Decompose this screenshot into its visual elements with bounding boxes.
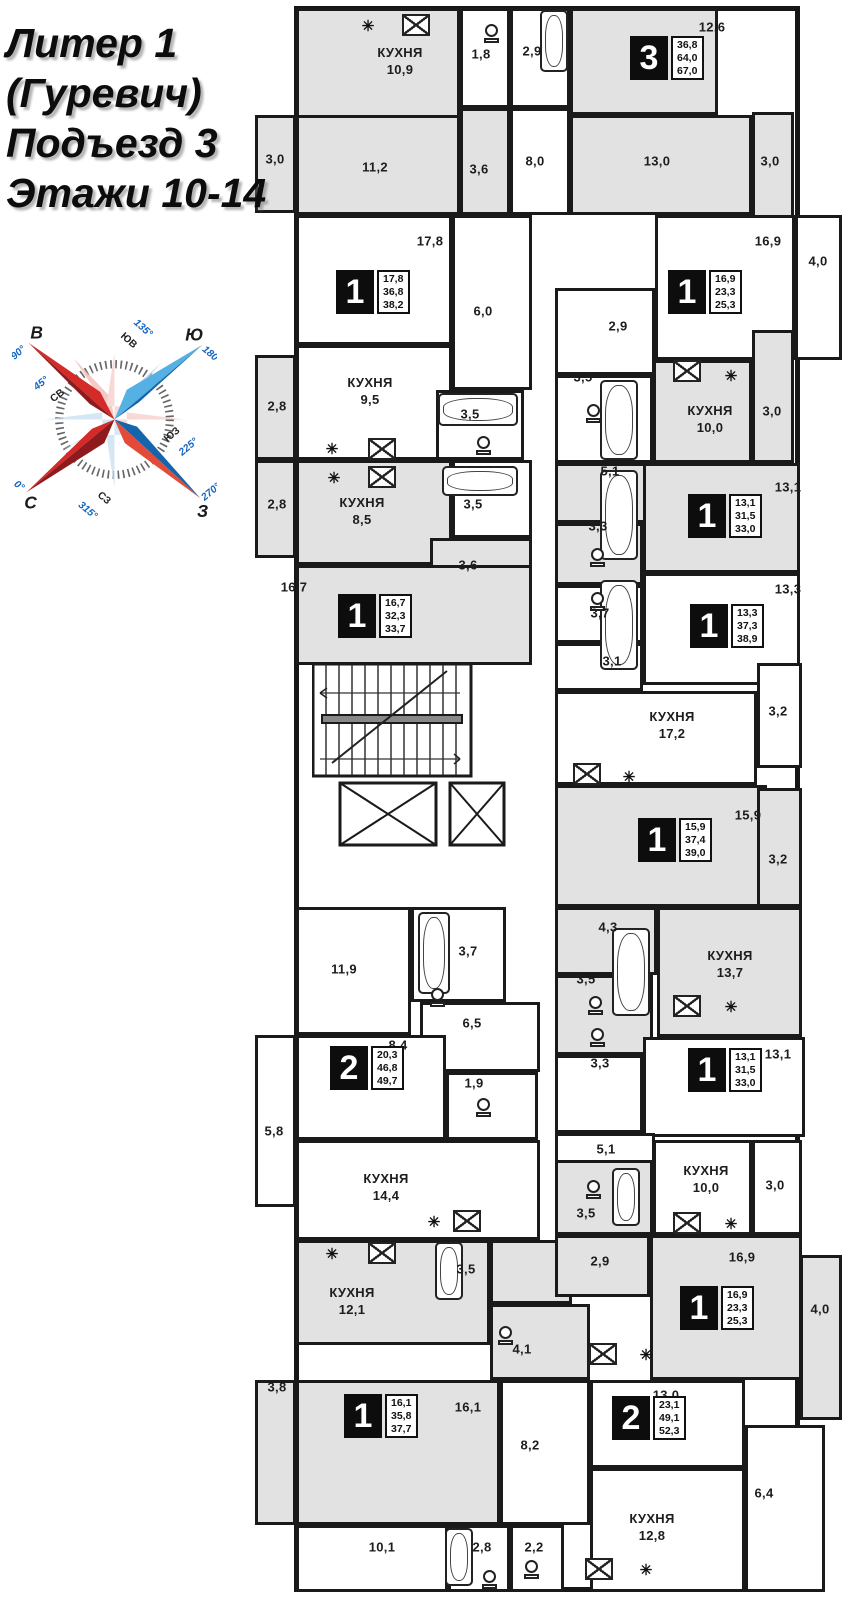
bathtub-icon: [612, 928, 650, 1016]
room-area-label: 3,8: [268, 1380, 287, 1397]
toilet-icon: [430, 988, 445, 1007]
room-area-label: 16,1: [455, 1400, 482, 1417]
apartment-room-count: 3: [630, 36, 668, 80]
room-area-label: 5,1: [601, 464, 620, 481]
floor-plan: КУХНЯ 10,91,82,912,613,03,03,011,23,68,0…: [0, 0, 842, 1600]
room-area-label: 5,8: [265, 1124, 284, 1141]
room-area-label: 3,5: [574, 370, 593, 387]
apartment-badge: 113,131,533,0: [688, 494, 762, 538]
room-area-label: 16,9: [729, 1250, 756, 1267]
stove-icon: [368, 466, 396, 488]
room: [296, 565, 532, 665]
room-area-label: 1,9: [465, 1076, 484, 1093]
room-area-label: 3,3: [591, 1056, 610, 1073]
compass-label-west: З: [197, 501, 208, 521]
room: [795, 215, 842, 360]
room-area-label: 6,0: [474, 304, 493, 321]
vent-icon: ✳: [640, 1561, 653, 1579]
room-area-label: 3,6: [459, 558, 478, 575]
title-architect: (Гуревич): [6, 68, 266, 118]
room: [500, 1380, 590, 1525]
room: [757, 788, 802, 907]
stairwell: [313, 664, 471, 776]
apartment-badge: 223,149,152,3: [612, 1396, 686, 1440]
stove-icon: [585, 1558, 613, 1580]
room-area-label: 11,9: [331, 962, 357, 979]
stove-icon: [673, 1212, 701, 1234]
vent-icon: ✳: [725, 998, 738, 1016]
room-area-label: КУХНЯ 10,0: [683, 1163, 728, 1197]
vent-icon: ✳: [326, 440, 339, 458]
bathtub-icon: [600, 470, 638, 560]
title-liter: Литер 1: [6, 18, 266, 68]
compass-label-se: ЮВ: [118, 331, 139, 351]
elevator-large: [340, 783, 436, 845]
room-area-label: КУХНЯ 13,7: [707, 948, 752, 982]
room: [296, 1525, 448, 1592]
room-area-label: 2,8: [473, 1540, 492, 1557]
stair-elevator-core: [312, 663, 512, 853]
room-area-label: 3,0: [761, 154, 780, 171]
compass-deg-sw: 225°: [176, 436, 201, 459]
room-area-label: 8,0: [526, 154, 545, 171]
apartment-areas: 13,131,533,0: [729, 1048, 762, 1092]
room-area-label: 3,3: [589, 519, 608, 536]
title-floors: Этажи 10-14: [6, 168, 266, 218]
compass-label-south: Ю: [185, 325, 203, 345]
bathtub-icon: [418, 912, 450, 994]
room-area-label: 3,7: [591, 606, 610, 623]
toilet-icon: [482, 1570, 497, 1589]
room: [452, 215, 532, 390]
room-area-label: 3,0: [763, 404, 782, 421]
vent-icon: ✳: [725, 1215, 738, 1233]
apartment-badge: 117,836,838,2: [336, 270, 410, 314]
stove-icon: [573, 763, 601, 785]
room-area-label: 3,0: [766, 1178, 785, 1195]
toilet-icon: [484, 24, 499, 43]
room-area-label: 2,9: [609, 319, 628, 336]
bathtub-icon: [600, 380, 638, 460]
room-area-label: 2,8: [268, 399, 287, 416]
apartment-room-count: 1: [688, 1048, 726, 1092]
room: [752, 330, 794, 463]
room-area-label: КУХНЯ 12,1: [329, 1285, 374, 1319]
room-area-label: 15,9: [735, 808, 762, 825]
room-area-label: 13,1: [775, 480, 802, 497]
toilet-icon: [476, 436, 491, 455]
vent-icon: ✳: [640, 1346, 653, 1364]
room-area-label: 2,9: [523, 44, 542, 61]
apartment-room-count: 2: [612, 1396, 650, 1440]
stove-icon: [453, 1210, 481, 1232]
compass-label-sw: ЮЗ: [162, 425, 182, 444]
room-area-label: 6,4: [755, 1486, 774, 1503]
stove-icon: [402, 14, 430, 36]
stove-icon: [368, 1242, 396, 1264]
apartment-badge: 116,732,333,7: [338, 594, 412, 638]
apartment-areas: 20,346,849,7: [371, 1046, 404, 1090]
room-area-label: 3,6: [470, 162, 489, 179]
compass-deg-se: 135°: [131, 317, 155, 340]
title-entrance: Подъезд 3: [6, 118, 266, 168]
bathtub-icon: [445, 1528, 473, 1586]
room-area-label: 3,5: [457, 1262, 476, 1279]
apartment-room-count: 1: [344, 1394, 382, 1438]
stove-icon: [368, 438, 396, 460]
room-area-label: 3,2: [769, 852, 788, 869]
apartment-room-count: 1: [690, 604, 728, 648]
room-area-label: 3,5: [464, 497, 483, 514]
room-area-label: 3,5: [577, 972, 596, 989]
room-area-label: 13,0: [644, 154, 671, 171]
apartment-areas: 13,131,533,0: [729, 494, 762, 538]
room: [296, 1140, 540, 1240]
apartment-room-count: 1: [638, 818, 676, 862]
room: [255, 1380, 296, 1525]
apartment-areas: 16,135,837,7: [385, 1394, 418, 1438]
apartment-room-count: 1: [336, 270, 374, 314]
room-area-label: 12,6: [699, 20, 726, 37]
bathtub-icon: [540, 10, 568, 72]
room-area-label: 13,3: [775, 582, 802, 599]
apartment-areas: 17,836,838,2: [377, 270, 410, 314]
room-area-label: 16,9: [755, 234, 782, 251]
room-area-label: 11,2: [362, 160, 388, 177]
apartment-badge: 116,135,837,7: [344, 1394, 418, 1438]
room-area-label: 2,8: [268, 497, 287, 514]
vent-icon: ✳: [326, 1245, 339, 1263]
vent-icon: ✳: [362, 17, 375, 35]
apartment-badge: 113,337,338,9: [690, 604, 764, 648]
room-area-label: 3,5: [577, 1206, 596, 1223]
compass-rose: В 90° Ю 180° С 0° З 270° СВ 45° ЮВ 135° …: [12, 312, 217, 527]
vent-icon: ✳: [328, 469, 341, 487]
room: [510, 1525, 564, 1592]
bathtub-icon: [442, 466, 518, 496]
room-area-label: 17,8: [417, 234, 444, 251]
room-area-label: 1,8: [472, 47, 491, 64]
apartment-room-count: 1: [688, 494, 726, 538]
apartment-areas: 16,923,325,3: [721, 1286, 754, 1330]
vent-icon: ✳: [725, 367, 738, 385]
room-area-label: 10,1: [369, 1540, 396, 1557]
plan-title: Литер 1 (Гуревич) Подъезд 3 Этажи 10-14: [6, 18, 266, 218]
toilet-icon: [498, 1326, 513, 1345]
apartment-badge: 336,864,067,0: [630, 36, 704, 80]
room: [446, 1072, 538, 1140]
room-area-label: 16,7: [281, 580, 308, 597]
room-area-label: КУХНЯ 14,4: [363, 1171, 408, 1205]
compass-deg-south: 180°: [200, 344, 217, 367]
room-area-label: 4,3: [599, 920, 618, 937]
room-area-label: КУХНЯ 12,8: [629, 1511, 674, 1545]
apartment-areas: 23,149,152,3: [653, 1396, 686, 1440]
room-area-label: КУХНЯ 10,9: [377, 45, 422, 79]
apartment-areas: 36,864,067,0: [671, 36, 704, 80]
room-area-label: 3,5: [461, 407, 480, 424]
room-area-label: КУХНЯ 17,2: [649, 709, 694, 743]
stove-icon: [673, 995, 701, 1017]
toilet-icon: [586, 404, 601, 423]
compass-label-ne: СВ: [48, 387, 66, 405]
room: [555, 288, 655, 375]
toilet-icon: [590, 548, 605, 567]
bathtub-icon: [612, 1168, 640, 1226]
apartment-badge: 113,131,533,0: [688, 1048, 762, 1092]
elevator-small: [450, 783, 504, 845]
room-area-label: КУХНЯ 9,5: [347, 375, 392, 409]
room-area-label: КУХНЯ 10,0: [687, 403, 732, 437]
toilet-icon: [586, 1180, 601, 1199]
room-area-label: 3,2: [769, 704, 788, 721]
apartment-badge: 220,346,849,7: [330, 1046, 404, 1090]
room-area-label: 2,2: [525, 1540, 544, 1557]
room-area-label: 13,1: [765, 1047, 792, 1064]
compass-deg-ne: 45°: [31, 374, 51, 393]
apartment-areas: 13,337,338,9: [731, 604, 764, 648]
room-area-label: 6,5: [463, 1016, 482, 1033]
stove-icon: [673, 360, 701, 382]
room-area-label: 2,9: [591, 1254, 610, 1271]
vent-icon: ✳: [428, 1213, 441, 1231]
apartment-badge: 116,923,325,3: [668, 270, 742, 314]
room-area-label: 4,1: [513, 1342, 532, 1359]
apartment-areas: 16,732,333,7: [379, 594, 412, 638]
toilet-icon: [590, 1028, 605, 1047]
room-area-label: КУХНЯ 8,5: [339, 495, 384, 529]
compass-label-east: В: [30, 323, 43, 343]
stove-icon: [589, 1343, 617, 1365]
room-area-label: 4,0: [811, 1302, 830, 1319]
apartment-room-count: 2: [330, 1046, 368, 1090]
apartment-areas: 16,923,325,3: [709, 270, 742, 314]
compass-label-nw: СЗ: [95, 490, 113, 507]
room-area-label: 5,1: [597, 1142, 616, 1159]
apartment-room-count: 1: [668, 270, 706, 314]
room-area-label: 3,7: [459, 944, 478, 961]
room-area-label: 4,0: [809, 254, 828, 271]
room: [800, 1255, 842, 1420]
room-area-label: 8,2: [521, 1438, 540, 1455]
apartment-room-count: 1: [680, 1286, 718, 1330]
room-area-label: 3,1: [603, 654, 622, 671]
compass-deg-east: 90°: [12, 343, 29, 362]
apartment-room-count: 1: [338, 594, 376, 638]
room: [255, 1035, 296, 1207]
vent-icon: ✳: [623, 768, 636, 786]
compass-label-north: С: [24, 493, 37, 513]
toilet-icon: [588, 996, 603, 1015]
toilet-icon: [524, 1560, 539, 1579]
apartment-badge: 116,923,325,3: [680, 1286, 754, 1330]
room: [745, 1425, 825, 1592]
apartment-badge: 115,937,439,0: [638, 818, 712, 862]
toilet-icon: [476, 1098, 491, 1117]
apartment-areas: 15,937,439,0: [679, 818, 712, 862]
compass-deg-nw: 315°: [76, 500, 100, 523]
room-area-label: 3,0: [266, 152, 285, 169]
